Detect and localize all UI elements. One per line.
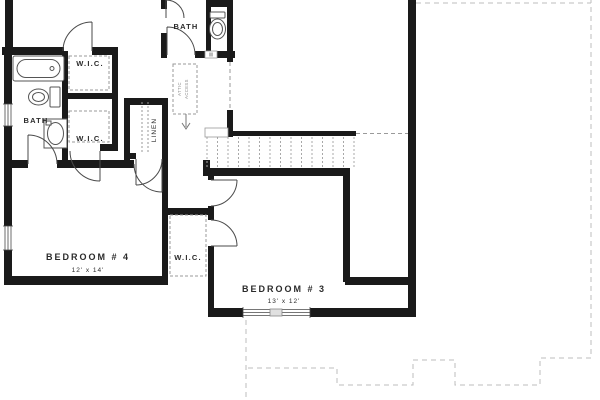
door-swing: [166, 0, 184, 18]
window: [3, 226, 13, 250]
wall-segment: [162, 208, 214, 215]
roof-outline: [246, 0, 591, 400]
door-swing: [211, 180, 237, 206]
wall-segment: [345, 277, 415, 285]
bathtub-icon: [13, 56, 64, 81]
room-label-bedroom3: BEDROOM # 3: [242, 284, 326, 294]
wall-segment: [208, 206, 214, 220]
wall-segment: [161, 33, 167, 58]
toilet-icon: [210, 12, 226, 39]
window-marker: [270, 309, 282, 316]
room-label-wic-2: W.I.C.: [76, 134, 104, 143]
wall-segment: [203, 168, 350, 176]
room-label-bedroom4: BEDROOM # 4: [46, 252, 130, 262]
toilet-icon: [29, 87, 61, 107]
room-label-linen: LINEN: [151, 118, 158, 142]
room-label-bath-left: BATH: [23, 116, 48, 125]
attic-pull-arrow: [182, 114, 190, 129]
door-swing: [134, 164, 162, 192]
attic-access-label: ATTIC ACCESS: [177, 79, 189, 99]
wall-segment: [124, 98, 130, 160]
door-swing: [63, 22, 92, 51]
wall-segment: [124, 153, 136, 159]
wall-segment: [62, 93, 118, 99]
wall-segment: [5, 0, 13, 50]
wall-segment: [343, 172, 350, 282]
room-dims-bedroom3: 13' x 12': [268, 298, 301, 305]
door-swing: [167, 27, 195, 55]
stair-rail: [227, 131, 356, 136]
room-label-wic-3: W.I.C.: [174, 253, 202, 262]
wall-segment: [2, 47, 64, 55]
room-dims-bedroom4: 12' x 14': [72, 267, 105, 274]
door-swing: [211, 220, 237, 246]
attic-label-line2: ACCESS: [184, 79, 189, 99]
window: [243, 307, 310, 318]
stair-treads: [207, 137, 354, 168]
wall-segment: [124, 98, 168, 105]
wall-segment: [100, 144, 118, 151]
wall-segment: [4, 160, 28, 168]
window: [3, 104, 13, 126]
roofline-dashed: [248, 0, 591, 385]
closet-shelf-dashed: [170, 215, 206, 276]
wall-segment: [227, 0, 233, 62]
room-label-bath-hall: BATH: [173, 22, 198, 31]
attic-label-line1: ATTIC: [177, 82, 182, 96]
room-label-wic-1: W.I.C.: [76, 59, 104, 68]
cased-opening-marker: [205, 51, 217, 58]
wall-segment: [162, 98, 168, 284]
wall-segment: [208, 308, 414, 317]
wall-segment: [208, 168, 214, 180]
floor-plan-page: BATH W.I.C. W.I.C. LINEN BATH BEDROOM # …: [0, 0, 600, 400]
fixtures: [13, 12, 226, 148]
stair-landing-step: [205, 128, 228, 137]
wall-segment: [57, 160, 134, 168]
linen-shelf-dashed: [142, 102, 148, 152]
wall-segment: [208, 246, 214, 316]
wall-segment: [408, 0, 416, 317]
wall-segment: [4, 276, 168, 285]
floor-plan-canvas: BATH W.I.C. W.I.C. LINEN BATH BEDROOM # …: [0, 0, 600, 400]
